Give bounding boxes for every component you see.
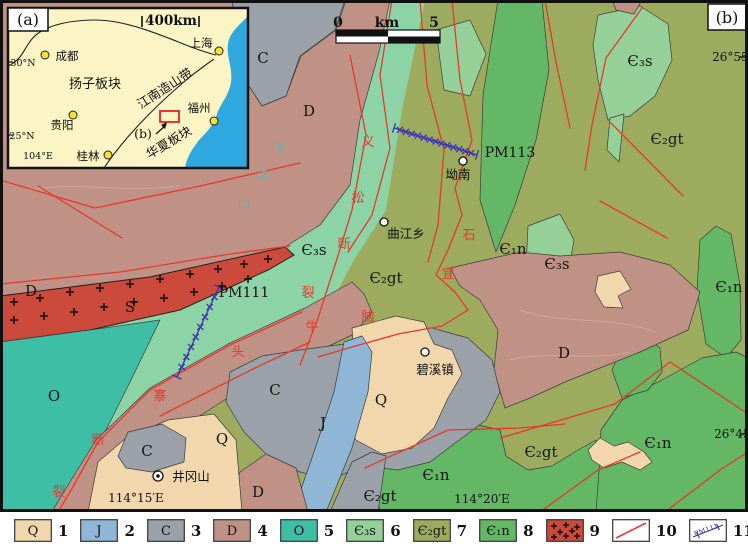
map-label-fault: 裂	[52, 485, 65, 500]
map-label-unit: Є₁n	[644, 434, 671, 452]
map-label-trav: PM113	[485, 145, 535, 161]
inset-label: 30°N	[10, 58, 35, 69]
legend-item-9: 9	[546, 519, 600, 542]
inset-map: 成都上海贵阳桂林福州 400km扬子板块江南造山带华夏板块(b)30°N25°N…	[8, 8, 248, 168]
legend-unit-code: C	[161, 524, 171, 539]
map-label-fault: 松	[351, 191, 364, 206]
town-marker-center	[156, 474, 160, 478]
legend-unit-code: Є₃s	[354, 524, 376, 539]
legend-item-1: Q1	[14, 519, 68, 542]
map-label-unit: D	[252, 483, 264, 501]
map-label-town: 碧溪镇	[416, 362, 454, 377]
map-label-coord: 26°45′N	[714, 427, 748, 441]
map-label-town: 曲江乡	[387, 226, 425, 241]
inset-label: 104°E	[23, 151, 53, 162]
map-label-fault: 断	[91, 433, 104, 448]
city-dot-福州	[210, 117, 218, 125]
map-label-fault: 寨	[153, 388, 166, 404]
map-label-unit: D	[558, 344, 570, 362]
map-label-unit: Є₃s	[627, 52, 652, 70]
map-label-unit: Є₂gt	[524, 443, 557, 461]
map-label-unit: D	[25, 282, 37, 300]
map-label-unit: Є₁n	[715, 278, 742, 296]
map-label-unit: Є₂gt	[369, 269, 402, 287]
city-dot-成都	[41, 51, 49, 59]
panel-b-label: (b)	[716, 8, 739, 27]
town-marker-曲江乡	[380, 218, 388, 226]
map-label-unit: Є₂gt	[363, 487, 396, 505]
legend-item-11: PM11111	[689, 519, 748, 542]
panel-a-label: (a)	[17, 10, 39, 29]
legend-swatch-unit: O	[280, 519, 318, 542]
map-label-mtn: 南	[271, 139, 284, 155]
map-label-unit: Є₁n	[422, 466, 449, 484]
legend-unit-code: Q	[28, 524, 39, 539]
map-label-unit: Є₂gt	[650, 130, 683, 148]
legend-swatch-granite	[546, 519, 584, 542]
city-label-成都: 成都	[56, 49, 79, 63]
inset-label: 400km	[145, 13, 197, 29]
map-label-fault: 头	[231, 345, 244, 360]
map-label-fault: 宜	[441, 267, 454, 282]
legend-swatch-unit: D	[213, 519, 251, 542]
town-marker-坳南	[459, 157, 467, 165]
legend-number: 10	[656, 522, 677, 540]
legend-item-6: Є₃s6	[346, 519, 400, 542]
legend-item-8: Є₁n8	[479, 519, 533, 542]
map-label-fault: 断	[337, 237, 350, 252]
legend-item-7: Є₂gt7	[413, 519, 467, 542]
legend-swatch-unit: Є₁n	[479, 519, 517, 542]
map-label-unit: S	[125, 298, 135, 316]
map-label-unit: C	[257, 49, 268, 67]
legend: Q1J2C3D4O5Є₃s6Є₂gt7Є₁n8910PM1111112	[0, 512, 748, 549]
map-label-unit: Є₃s	[301, 241, 326, 259]
legend-number: 6	[390, 522, 400, 540]
legend-number: 2	[124, 522, 134, 540]
legend-item-2: J2	[80, 519, 134, 542]
legend-item-3: C3	[147, 519, 201, 542]
legend-unit-code: Є₂gt	[417, 524, 446, 539]
city-label-贵阳: 贵阳	[51, 118, 74, 132]
map-label-unit: D	[303, 102, 315, 120]
map-label-scale: 5	[429, 15, 439, 31]
map-label-unit: C	[269, 381, 280, 399]
legend-item-4: D4	[213, 519, 267, 542]
legend-swatch-unit: Є₃s	[346, 519, 384, 542]
map-label-coord: 114°20′E	[454, 492, 510, 506]
map-label-fault: 义	[361, 135, 374, 150]
map-label-mtn: 山	[237, 197, 250, 212]
legend-swatch-traverse: PM111	[689, 519, 727, 542]
map-label-trav: PM111	[219, 285, 269, 301]
map-label-unit: Q	[375, 391, 387, 409]
legend-swatch-unit: Q	[14, 519, 52, 542]
map-label-fault: 脑	[361, 310, 374, 325]
inset-label: 扬子板块	[69, 77, 121, 92]
town-marker-碧溪镇	[421, 348, 429, 356]
map-label-unit: C	[141, 442, 152, 460]
scale-bar	[336, 30, 440, 43]
legend-number: 3	[191, 522, 201, 540]
map-label-fault: 牛	[305, 320, 318, 335]
legend-number: 5	[324, 522, 334, 540]
city-label-上海: 上海	[190, 36, 213, 50]
legend-swatch-fault	[612, 519, 650, 542]
city-label-福州: 福州	[188, 101, 211, 115]
legend-number: 7	[457, 522, 467, 540]
map-label-unit: Є₁n	[499, 240, 526, 258]
map-label-coord: 114°15′E	[108, 491, 164, 505]
panel-a-box: (a)	[8, 8, 48, 31]
map-label-unit: O	[48, 387, 60, 405]
map-label-unit: Є₃s	[544, 255, 569, 273]
legend-swatch-unit: C	[147, 519, 185, 542]
map-label-unit: J	[318, 414, 326, 432]
map-label-town: 井冈山	[172, 469, 210, 484]
city-dot-上海	[215, 47, 223, 55]
legend-item-5: O5	[280, 519, 334, 542]
map-label-town: 坳南	[445, 167, 470, 182]
map-label-fault: 石	[462, 228, 475, 243]
city-dot-桂林	[104, 151, 112, 159]
legend-number: 9	[590, 522, 600, 540]
legend-unit-code: O	[293, 524, 304, 539]
map-label-coord: 26°55′N	[712, 50, 748, 64]
geological-figure: CDDSOCQCJDQDЄ₃sЄ₂gtЄ₃sЄ₂gtЄ₁nЄ₃sЄ₁nЄ₂gtЄ…	[0, 0, 748, 549]
legend-unit-code: J	[95, 524, 102, 539]
legend-number: 4	[257, 522, 267, 540]
map-label-unit: Q	[216, 430, 228, 448]
legend-swatch-unit: Є₂gt	[413, 519, 451, 542]
inset-label: (b)	[134, 126, 152, 141]
legend-swatch-unit: J	[80, 519, 118, 542]
panel-b-box: (b)	[708, 4, 746, 30]
legend-unit-code: D	[227, 524, 237, 539]
geologic-map: CDDSOCQCJDQDЄ₃sЄ₂gtЄ₃sЄ₂gtЄ₁nЄ₃sЄ₁nЄ₂gtЄ…	[0, 0, 748, 512]
city-label-桂林: 桂林	[77, 149, 100, 163]
legend-number: 11	[733, 522, 748, 540]
map-label-scale: km	[375, 15, 400, 31]
map-label-fault: 裂	[301, 286, 314, 301]
legend-number: 8	[523, 522, 533, 540]
inset-label: 25°N	[9, 131, 34, 142]
map-label-scale: 0	[333, 15, 343, 31]
map-label-mtn: 华	[256, 168, 269, 183]
legend-item-10: 10	[612, 519, 677, 542]
legend-unit-code: Є₁n	[486, 524, 510, 539]
legend-number: 1	[58, 522, 68, 540]
